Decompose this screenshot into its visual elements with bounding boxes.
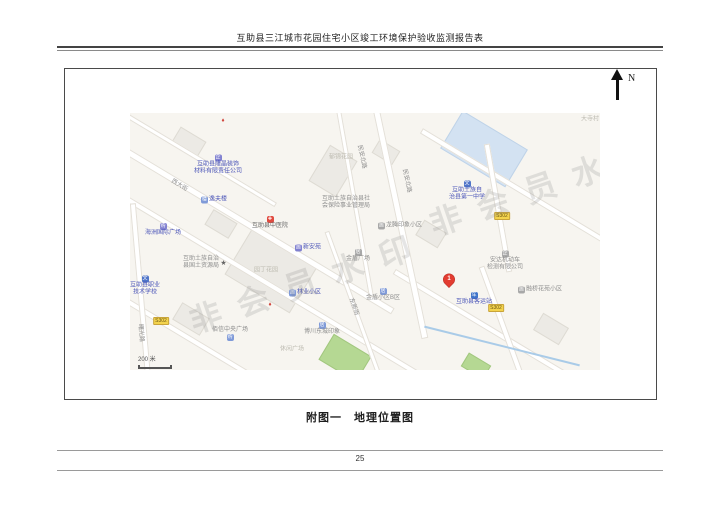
poi-label: 新安苑 xyxy=(303,245,321,252)
label-land-resources-bureau: 互助土族自治县国土资源局★ xyxy=(183,256,227,270)
footer-rule-bottom xyxy=(57,470,663,471)
residence-icon: 居 xyxy=(378,223,385,230)
report-page: 互助县三江城市花园住宅小区竣工环境保护验收监测报告表 N 非会员水印非会员水印S… xyxy=(0,0,720,508)
map-scale-label: 200 米 xyxy=(138,357,172,364)
poi-label: 曙光路 xyxy=(136,324,145,343)
poi-label: 民安北路 xyxy=(400,169,412,194)
residence-icon: 居 xyxy=(295,245,302,252)
hospital-cross-icon: ✚ xyxy=(266,216,273,223)
label-xinanyuan: 居新安苑 xyxy=(295,245,321,252)
page-number: 25 xyxy=(0,454,720,463)
residence-icon: 居 xyxy=(318,322,325,329)
label-social-insurance-bureau: 互助土族自治县社会保险事业管理局 xyxy=(322,196,370,210)
label-dasi-village: 大寺村 xyxy=(581,117,599,124)
poi-label: 互助土族自治县国土资源局 xyxy=(183,256,219,270)
building-icon: 楼 xyxy=(201,197,208,204)
shopping-icon: 购 xyxy=(226,334,233,341)
map-canvas[interactable]: 非会员水印非会员水印S302S302S302企互助县隆晶装饰材料有限责任公司楼逸… xyxy=(130,113,600,370)
road-label-dongxin: 东新街 xyxy=(347,297,360,316)
road-line xyxy=(479,266,526,370)
poi-label: 互助县隆晶装饰材料有限责任公司 xyxy=(194,162,242,176)
label-haizhou-plaza: 购海洲国际广场 xyxy=(145,223,181,237)
road-label-minan-north-upper: 民安北路 xyxy=(355,145,367,170)
north-label: N xyxy=(628,73,635,84)
poi-label: 郁锦花园 xyxy=(329,155,353,162)
poi-label: 大寺村 xyxy=(581,117,599,124)
road-label-minan-north: 民安北路 xyxy=(400,169,412,194)
residence-icon: 居 xyxy=(379,288,386,295)
footer-rule-top xyxy=(57,450,663,451)
poi-label: 互助县中医院 xyxy=(252,223,288,230)
label-bochuan-dongcheng: 居博川东城印象 xyxy=(304,322,340,336)
bus-icon: 车 xyxy=(470,292,477,299)
map-scale-bar xyxy=(138,365,172,369)
figure-caption: 附图一 地理位置图 xyxy=(0,409,720,425)
road-badge-s302: S302 xyxy=(153,317,169,325)
label-bus-station: 车互助县客运站 xyxy=(456,292,492,306)
poi-label: 融桥花苑小区 xyxy=(526,287,562,294)
north-arrow-shaft xyxy=(616,79,619,100)
label-yifulou: 楼逸夫楼 xyxy=(201,197,227,204)
header-title: 互助县三江城市花园住宅小区竣工环境保护验收监测报告表 xyxy=(0,31,720,44)
park-block xyxy=(461,352,492,370)
school-icon: 文 xyxy=(141,276,148,283)
map-scale: 200 米 xyxy=(138,357,172,369)
poi-label: 金盾小区B区 xyxy=(366,295,400,302)
label-longjing-company: 企互助县隆晶装饰材料有限责任公司 xyxy=(194,155,242,176)
poi-label: 互助县职业技术学校 xyxy=(130,283,160,297)
poi-label: 休闲广场 xyxy=(280,347,304,354)
residence-icon: 居 xyxy=(518,287,525,294)
label-yujin-garden: 郁锦花园 xyxy=(329,155,353,162)
label-rongqiao-community: 居融桥花苑小区 xyxy=(518,287,562,294)
star-icon: ★ xyxy=(220,260,227,267)
label-anda-vehicle-inspection: 企安达机动车检测有限公司 xyxy=(487,251,523,272)
location-marker: 1 xyxy=(444,274,455,285)
label-leisure-square: 休闲广场 xyxy=(280,347,304,354)
poi-label: 互助土族自治县社会保险事业管理局 xyxy=(322,196,370,210)
poi-label: 海洲国际广场 xyxy=(145,230,181,237)
location-marker-balloon: 1 xyxy=(441,272,457,288)
poi-label: 逸夫楼 xyxy=(209,197,227,204)
poi-label: 互助县客运站 xyxy=(456,299,492,306)
poi-label: 博川东城印象 xyxy=(304,329,340,336)
poi-label: 民安北路 xyxy=(355,145,367,170)
poi-label: 安达机动车检测有限公司 xyxy=(487,258,523,272)
label-tcm-hospital: ✚互助县中医院 xyxy=(252,216,288,230)
road-label-shuguang: 曙光路 xyxy=(136,324,145,343)
company-icon: 企 xyxy=(501,251,508,258)
poi-label: 东新街 xyxy=(347,297,360,316)
block-block xyxy=(533,313,569,346)
red-poi-icon: ♦ xyxy=(221,118,224,124)
shopping-icon: 购 xyxy=(159,223,166,230)
header-rule-thick xyxy=(57,46,663,48)
label-vocational-school: 文互助县职业技术学校 xyxy=(130,276,160,297)
header-rule-thin xyxy=(57,50,663,51)
company-icon: 企 xyxy=(214,155,221,162)
label-jindun-community-b: 居金盾小区B区 xyxy=(366,288,400,302)
